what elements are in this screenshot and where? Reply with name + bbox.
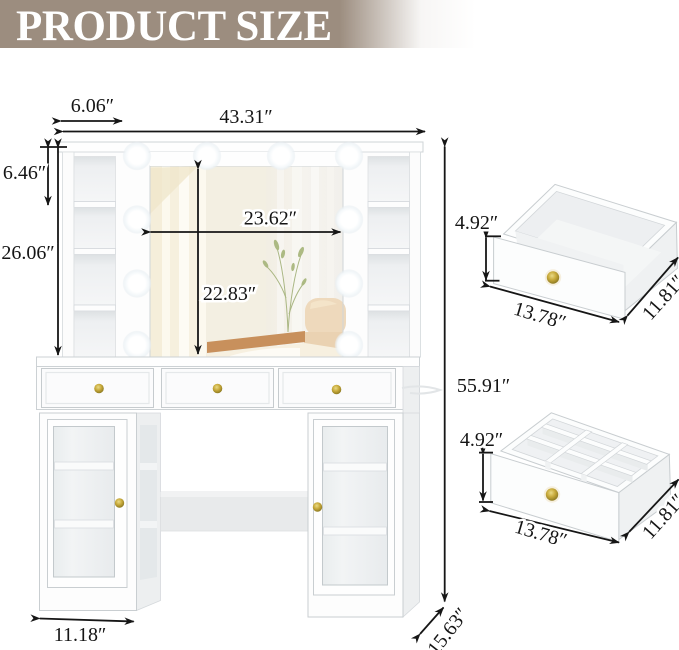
svg-text:6.46″: 6.46″ — [3, 162, 46, 184]
svg-text:6.06″: 6.06″ — [71, 95, 114, 117]
svg-text:11.18″: 11.18″ — [54, 624, 107, 646]
svg-text:43.31″: 43.31″ — [219, 106, 272, 128]
svg-text:22.83″: 22.83″ — [203, 283, 256, 305]
svg-text:4.92″: 4.92″ — [455, 212, 498, 234]
svg-text:23.62″: 23.62″ — [244, 208, 297, 230]
svg-text:55.91″: 55.91″ — [457, 375, 510, 397]
svg-text:PRODUCT SIZE: PRODUCT SIZE — [16, 3, 332, 50]
svg-text:26.06″: 26.06″ — [1, 242, 54, 264]
svg-text:4.92″: 4.92″ — [460, 429, 503, 451]
